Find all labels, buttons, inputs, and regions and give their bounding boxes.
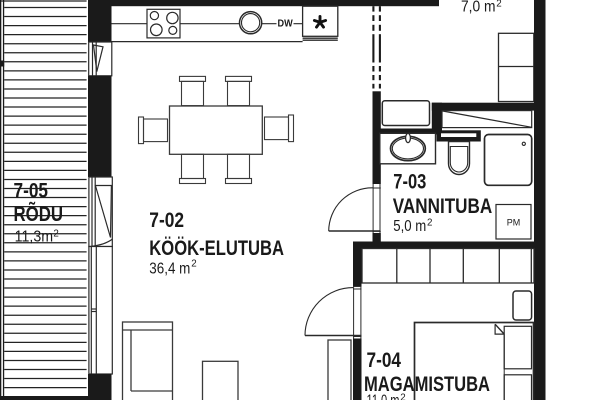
svg-text:2: 2 bbox=[427, 218, 432, 229]
svg-text:PM: PM bbox=[507, 218, 521, 229]
svg-text:2: 2 bbox=[400, 393, 405, 400]
svg-text:7-02: 7-02 bbox=[149, 209, 184, 232]
svg-text:2: 2 bbox=[191, 259, 196, 270]
svg-text:VANNITUBA: VANNITUBA bbox=[393, 195, 492, 218]
svg-text:KÖÖK-ELUTUBA: KÖÖK-ELUTUBA bbox=[149, 237, 284, 260]
svg-text:DW: DW bbox=[278, 18, 294, 29]
svg-text:36,4 m: 36,4 m bbox=[149, 261, 190, 278]
svg-text:11,3m: 11,3m bbox=[15, 229, 54, 246]
svg-text:7-04: 7-04 bbox=[367, 349, 402, 372]
svg-text:7,0 m: 7,0 m bbox=[461, 0, 496, 16]
svg-text:2: 2 bbox=[496, 0, 501, 9]
svg-text:2: 2 bbox=[53, 228, 58, 239]
svg-text:7-05: 7-05 bbox=[14, 180, 49, 203]
svg-text:5,0 m: 5,0 m bbox=[393, 218, 426, 235]
svg-text:RÕDU: RÕDU bbox=[14, 202, 64, 226]
svg-text:11,0 m: 11,0 m bbox=[367, 393, 400, 400]
svg-text:7-03: 7-03 bbox=[393, 171, 426, 194]
